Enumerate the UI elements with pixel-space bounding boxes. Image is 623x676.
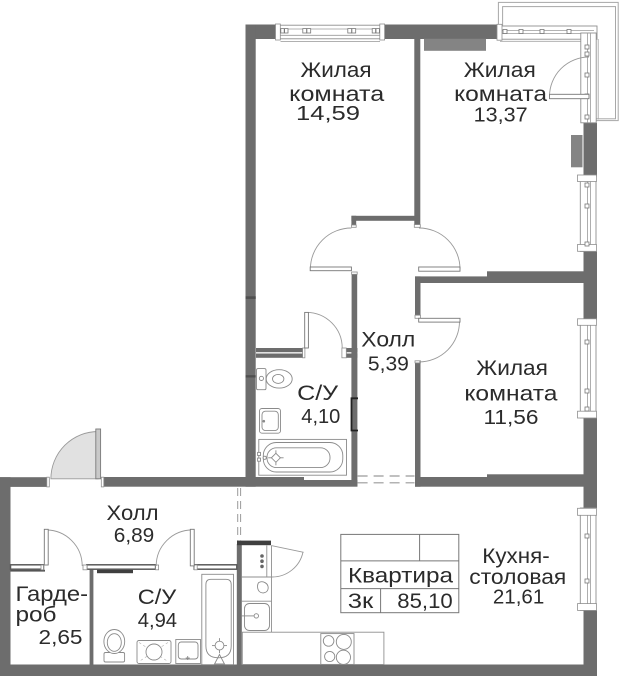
svg-text:Жилая: Жилая [301, 59, 372, 82]
svg-text:С/У: С/У [297, 382, 339, 405]
svg-text:4,94: 4,94 [138, 610, 177, 632]
svg-text:Жилая: Жилая [464, 59, 536, 82]
svg-text:С/У: С/У [138, 586, 177, 609]
svg-text:Холл: Холл [361, 329, 415, 352]
svg-text:4,10: 4,10 [301, 406, 340, 428]
svg-text:2,65: 2,65 [39, 627, 83, 649]
svg-text:роб: роб [16, 604, 57, 627]
svg-text:Квартира: Квартира [348, 564, 453, 588]
svg-text:11,56: 11,56 [484, 407, 539, 429]
svg-text:6,89: 6,89 [114, 525, 155, 547]
svg-text:14,59: 14,59 [296, 103, 360, 125]
svg-text:3к: 3к [348, 589, 374, 613]
svg-text:Жилая: Жилая [476, 357, 548, 380]
svg-text:5,39: 5,39 [368, 353, 409, 375]
svg-text:комната: комната [454, 82, 547, 106]
svg-text:85,10: 85,10 [397, 589, 452, 613]
svg-text:столовая: столовая [469, 565, 566, 589]
svg-text:21,61: 21,61 [493, 587, 544, 609]
svg-text:13,37: 13,37 [474, 104, 528, 126]
svg-text:комната: комната [464, 381, 557, 405]
svg-text:Холл: Холл [107, 502, 159, 525]
